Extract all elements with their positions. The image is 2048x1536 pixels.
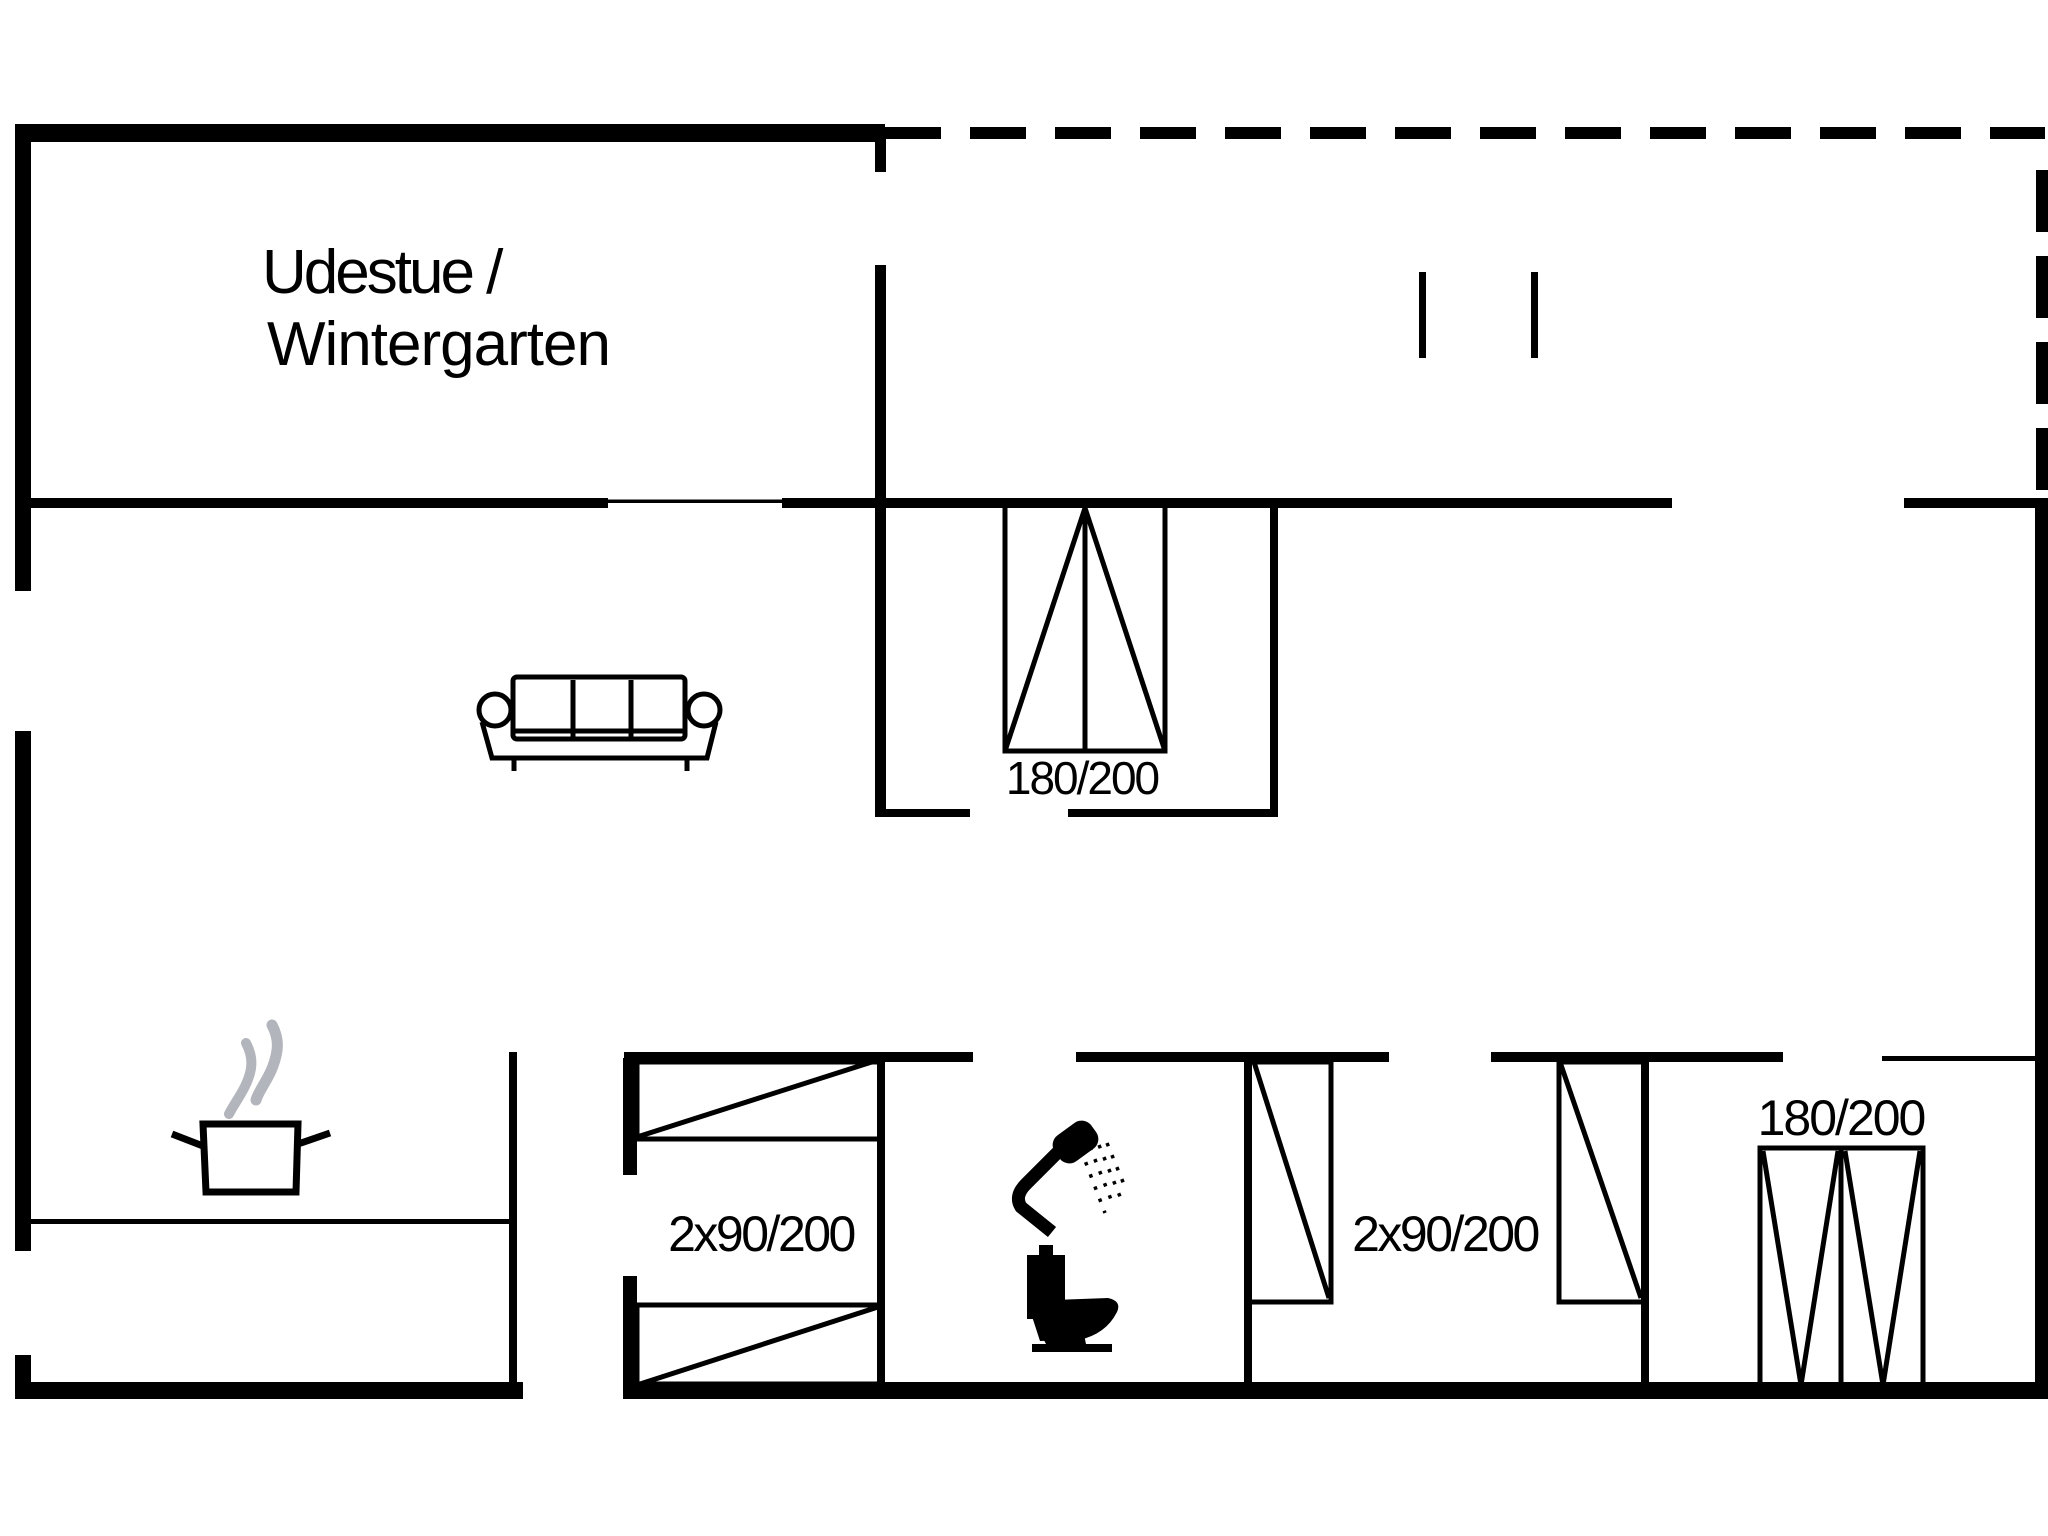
svg-text:2x90/200: 2x90/200 <box>1352 1206 1538 1262</box>
svg-text:180/200: 180/200 <box>1006 752 1159 804</box>
svg-text:Udestue /: Udestue / <box>262 238 504 307</box>
svg-text:Wintergarten: Wintergarten <box>267 310 610 379</box>
svg-text:2x90/200: 2x90/200 <box>668 1206 854 1262</box>
svg-text:180/200: 180/200 <box>1758 1090 1925 1146</box>
